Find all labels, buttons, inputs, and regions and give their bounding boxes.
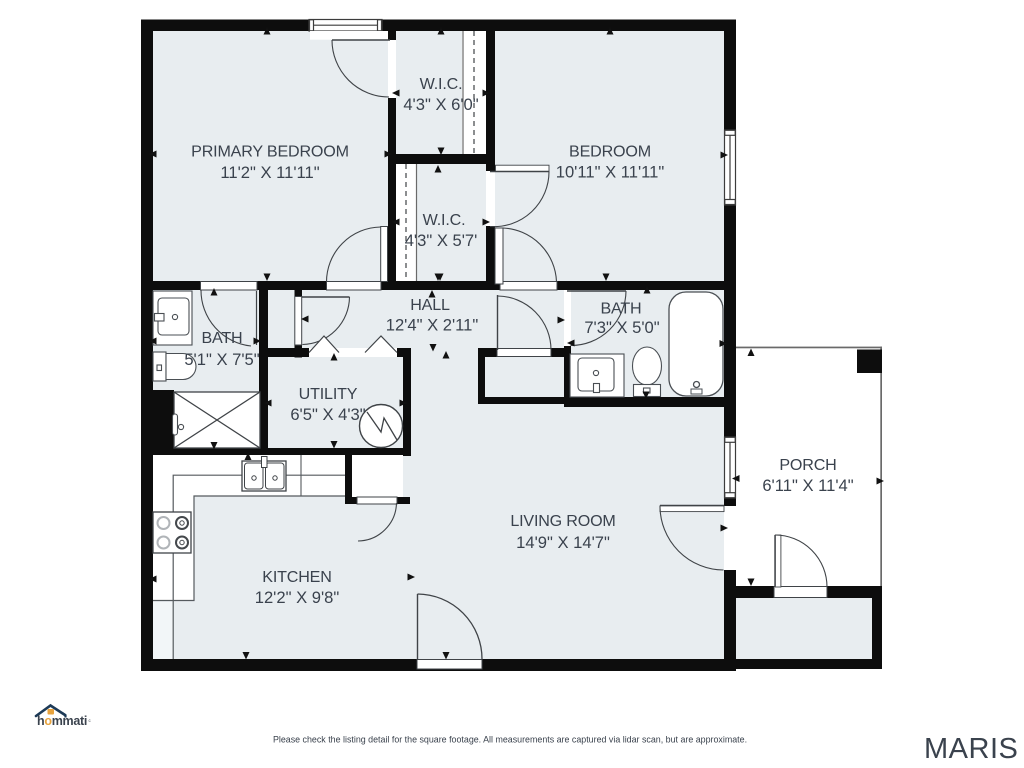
svg-text:PRIMARY BEDROOM: PRIMARY BEDROOM	[191, 143, 349, 161]
svg-text:hommati: hommati	[37, 714, 87, 728]
svg-text:6'11" X 11'4": 6'11" X 11'4"	[762, 476, 853, 495]
svg-text:4'3" X 5'7': 4'3" X 5'7'	[405, 231, 478, 250]
svg-text:KITCHEN: KITCHEN	[262, 568, 331, 586]
svg-text:10'11" X 11'11": 10'11" X 11'11"	[556, 163, 665, 182]
svg-text:W.I.C.: W.I.C.	[420, 75, 463, 93]
svg-text:6'5" X 4'3": 6'5" X 4'3"	[290, 405, 365, 424]
svg-text:12'2" X 9'8": 12'2" X 9'8"	[255, 588, 340, 607]
svg-text:HALL: HALL	[410, 296, 450, 314]
svg-text:Please check the listing detai: Please check the listing detail for the …	[273, 735, 747, 745]
svg-text:7'3" X 5'0": 7'3" X 5'0"	[584, 318, 659, 337]
svg-text:14'9" X 14'7": 14'9" X 14'7"	[516, 533, 610, 552]
svg-text:11'2" X 11'11": 11'2" X 11'11"	[220, 163, 319, 182]
svg-text:5'1" X 7'5": 5'1" X 7'5"	[184, 350, 259, 369]
svg-text:W.I.C.: W.I.C.	[423, 211, 466, 229]
svg-text:LIVING ROOM: LIVING ROOM	[510, 512, 615, 530]
svg-text:UTILITY: UTILITY	[299, 385, 358, 403]
svg-text:PORCH: PORCH	[779, 456, 836, 474]
svg-text:BATH: BATH	[600, 300, 641, 318]
svg-text:BEDROOM: BEDROOM	[569, 143, 651, 161]
svg-text:4'3" X 6'0": 4'3" X 6'0"	[403, 95, 478, 114]
svg-text:BATH: BATH	[201, 329, 242, 347]
svg-text:12'4" X 2'11": 12'4" X 2'11"	[386, 316, 479, 335]
svg-text:MARIS: MARIS	[924, 733, 1018, 765]
